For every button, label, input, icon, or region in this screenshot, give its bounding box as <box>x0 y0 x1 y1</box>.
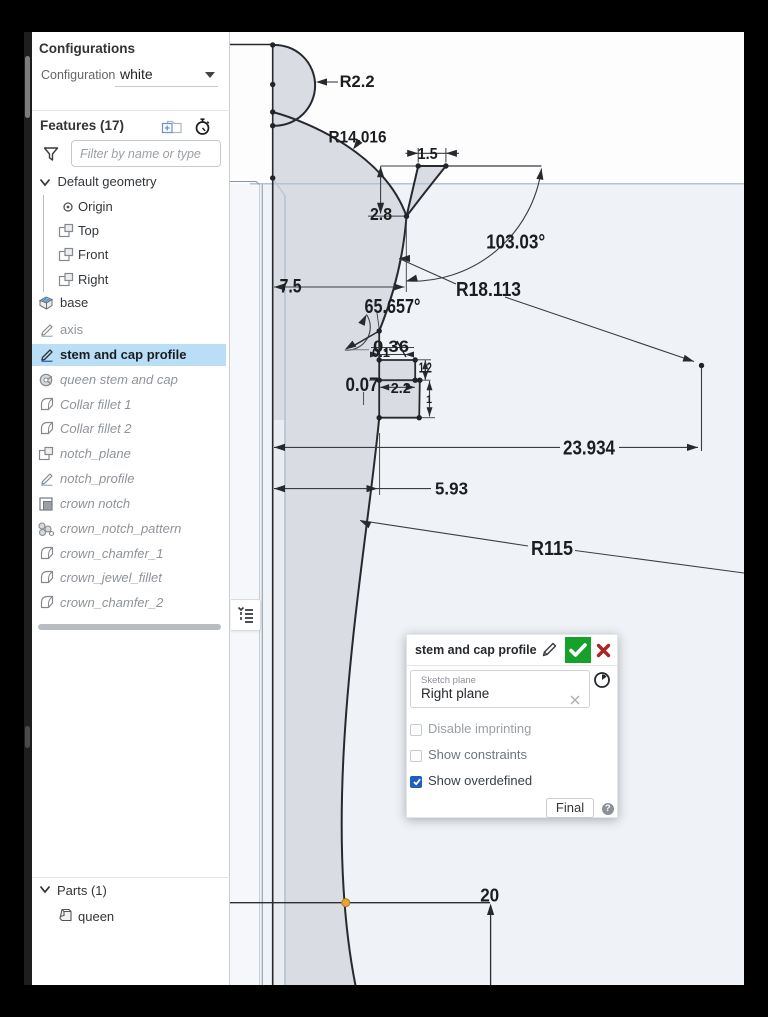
svg-text:0.1: 0.1 <box>372 345 390 360</box>
svg-text:R18.113: R18.113 <box>456 279 521 301</box>
svg-text:65.657°: 65.657° <box>365 296 421 318</box>
svg-text:7.5: 7.5 <box>280 277 302 298</box>
svg-text:2.8: 2.8 <box>370 204 392 224</box>
svg-text:1: 1 <box>426 394 432 406</box>
svg-text:23.934: 23.934 <box>563 438 616 460</box>
svg-text:R115: R115 <box>531 538 573 560</box>
svg-text:1.2: 1.2 <box>419 360 432 377</box>
svg-text:20: 20 <box>480 886 499 906</box>
svg-text:R14.016: R14.016 <box>329 128 387 147</box>
svg-text:1.5: 1.5 <box>418 146 438 163</box>
svg-text:5.93: 5.93 <box>435 479 468 499</box>
svg-text:103.03°: 103.03° <box>486 231 545 253</box>
svg-text:0.07: 0.07 <box>346 375 379 396</box>
svg-text:R2.2: R2.2 <box>340 72 375 91</box>
svg-text:2.2: 2.2 <box>391 380 411 397</box>
